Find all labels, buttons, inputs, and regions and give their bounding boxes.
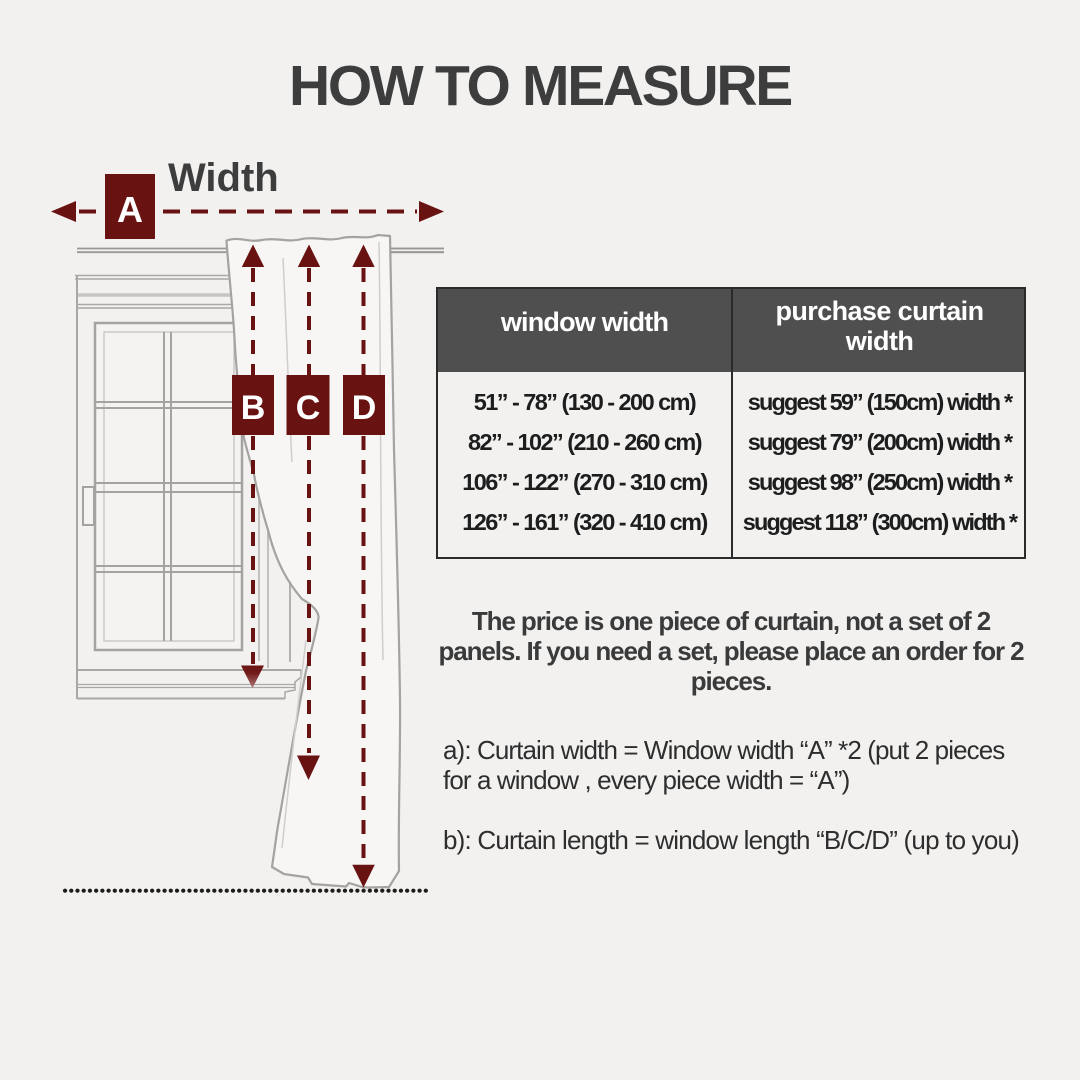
svg-text:A: A	[117, 189, 143, 230]
svg-text:Width: Width	[168, 156, 279, 200]
svg-text:B: B	[241, 389, 266, 427]
svg-text:C: C	[296, 389, 321, 427]
svg-text:D: D	[352, 389, 377, 427]
